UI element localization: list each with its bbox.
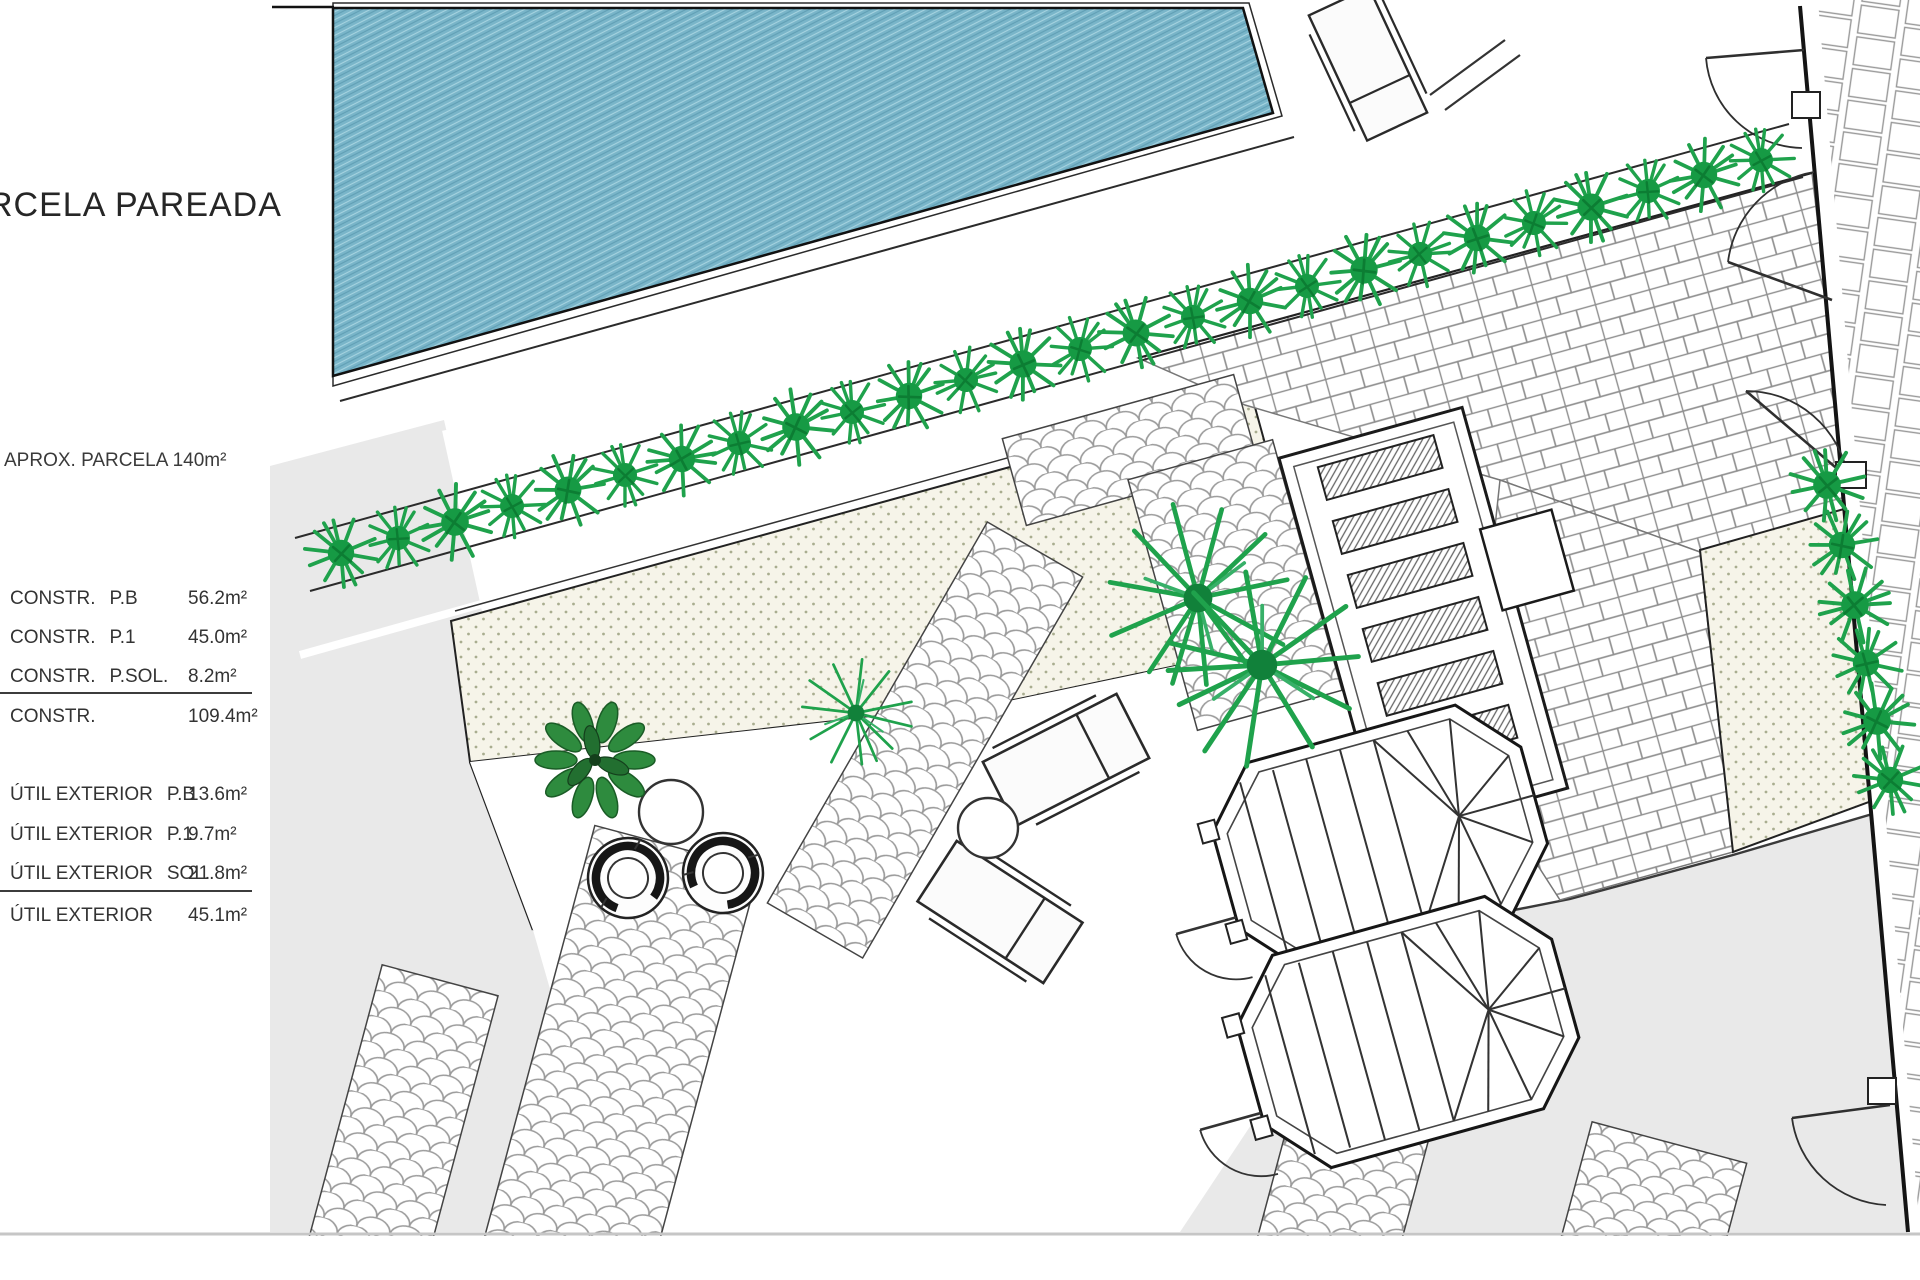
table-row: ÚTIL EXTERIORP.1 9.7m² [10,824,266,848]
sun-lounger-pool [1302,0,1434,144]
table-row: CONSTR.P.1 45.0m² [10,627,266,651]
round-table [639,780,703,844]
table-total-row: CONSTR. 109.4m² [10,706,266,730]
table-row: ÚTIL EXTERIORP.B 13.6m² [10,784,266,808]
area-value: 9.7m² [188,824,237,846]
door-post-1 [1792,92,1820,118]
area-value: 45.0m² [188,627,247,649]
table-row: ÚTIL EXTERIORSOL. 21.8m² [10,863,266,887]
table-row: CONSTR.P.SOL. 8.2m² [10,666,266,690]
area-value: 45.1m² [188,905,247,927]
area-value: 56.2m² [188,588,247,610]
table-rule [0,890,252,892]
area-value: 13.6m² [188,784,247,806]
table-row: CONSTR.P.B 56.2m² [10,588,266,612]
floor-plan-page: { "page": { "title": "RCELA PAREADA", "p… [0,0,1920,1280]
area-value: 8.2m² [188,666,237,688]
side-table [958,798,1018,858]
parcela-note: APROX. PARCELA 140m² [4,450,226,472]
pool-side-marks [1430,40,1520,110]
door-post-3 [1868,1078,1896,1104]
info-sidebar: RCELA PAREADA APROX. PARCELA 140m² CONST… [0,0,268,1280]
site-plan-drawing [0,0,1920,1280]
page-title: RCELA PAREADA [0,186,282,225]
table-rule [0,692,252,694]
table-total-row: ÚTIL EXTERIOR 45.1m² [10,905,266,929]
area-value: 21.8m² [188,863,247,885]
area-value: 109.4m² [188,706,258,728]
